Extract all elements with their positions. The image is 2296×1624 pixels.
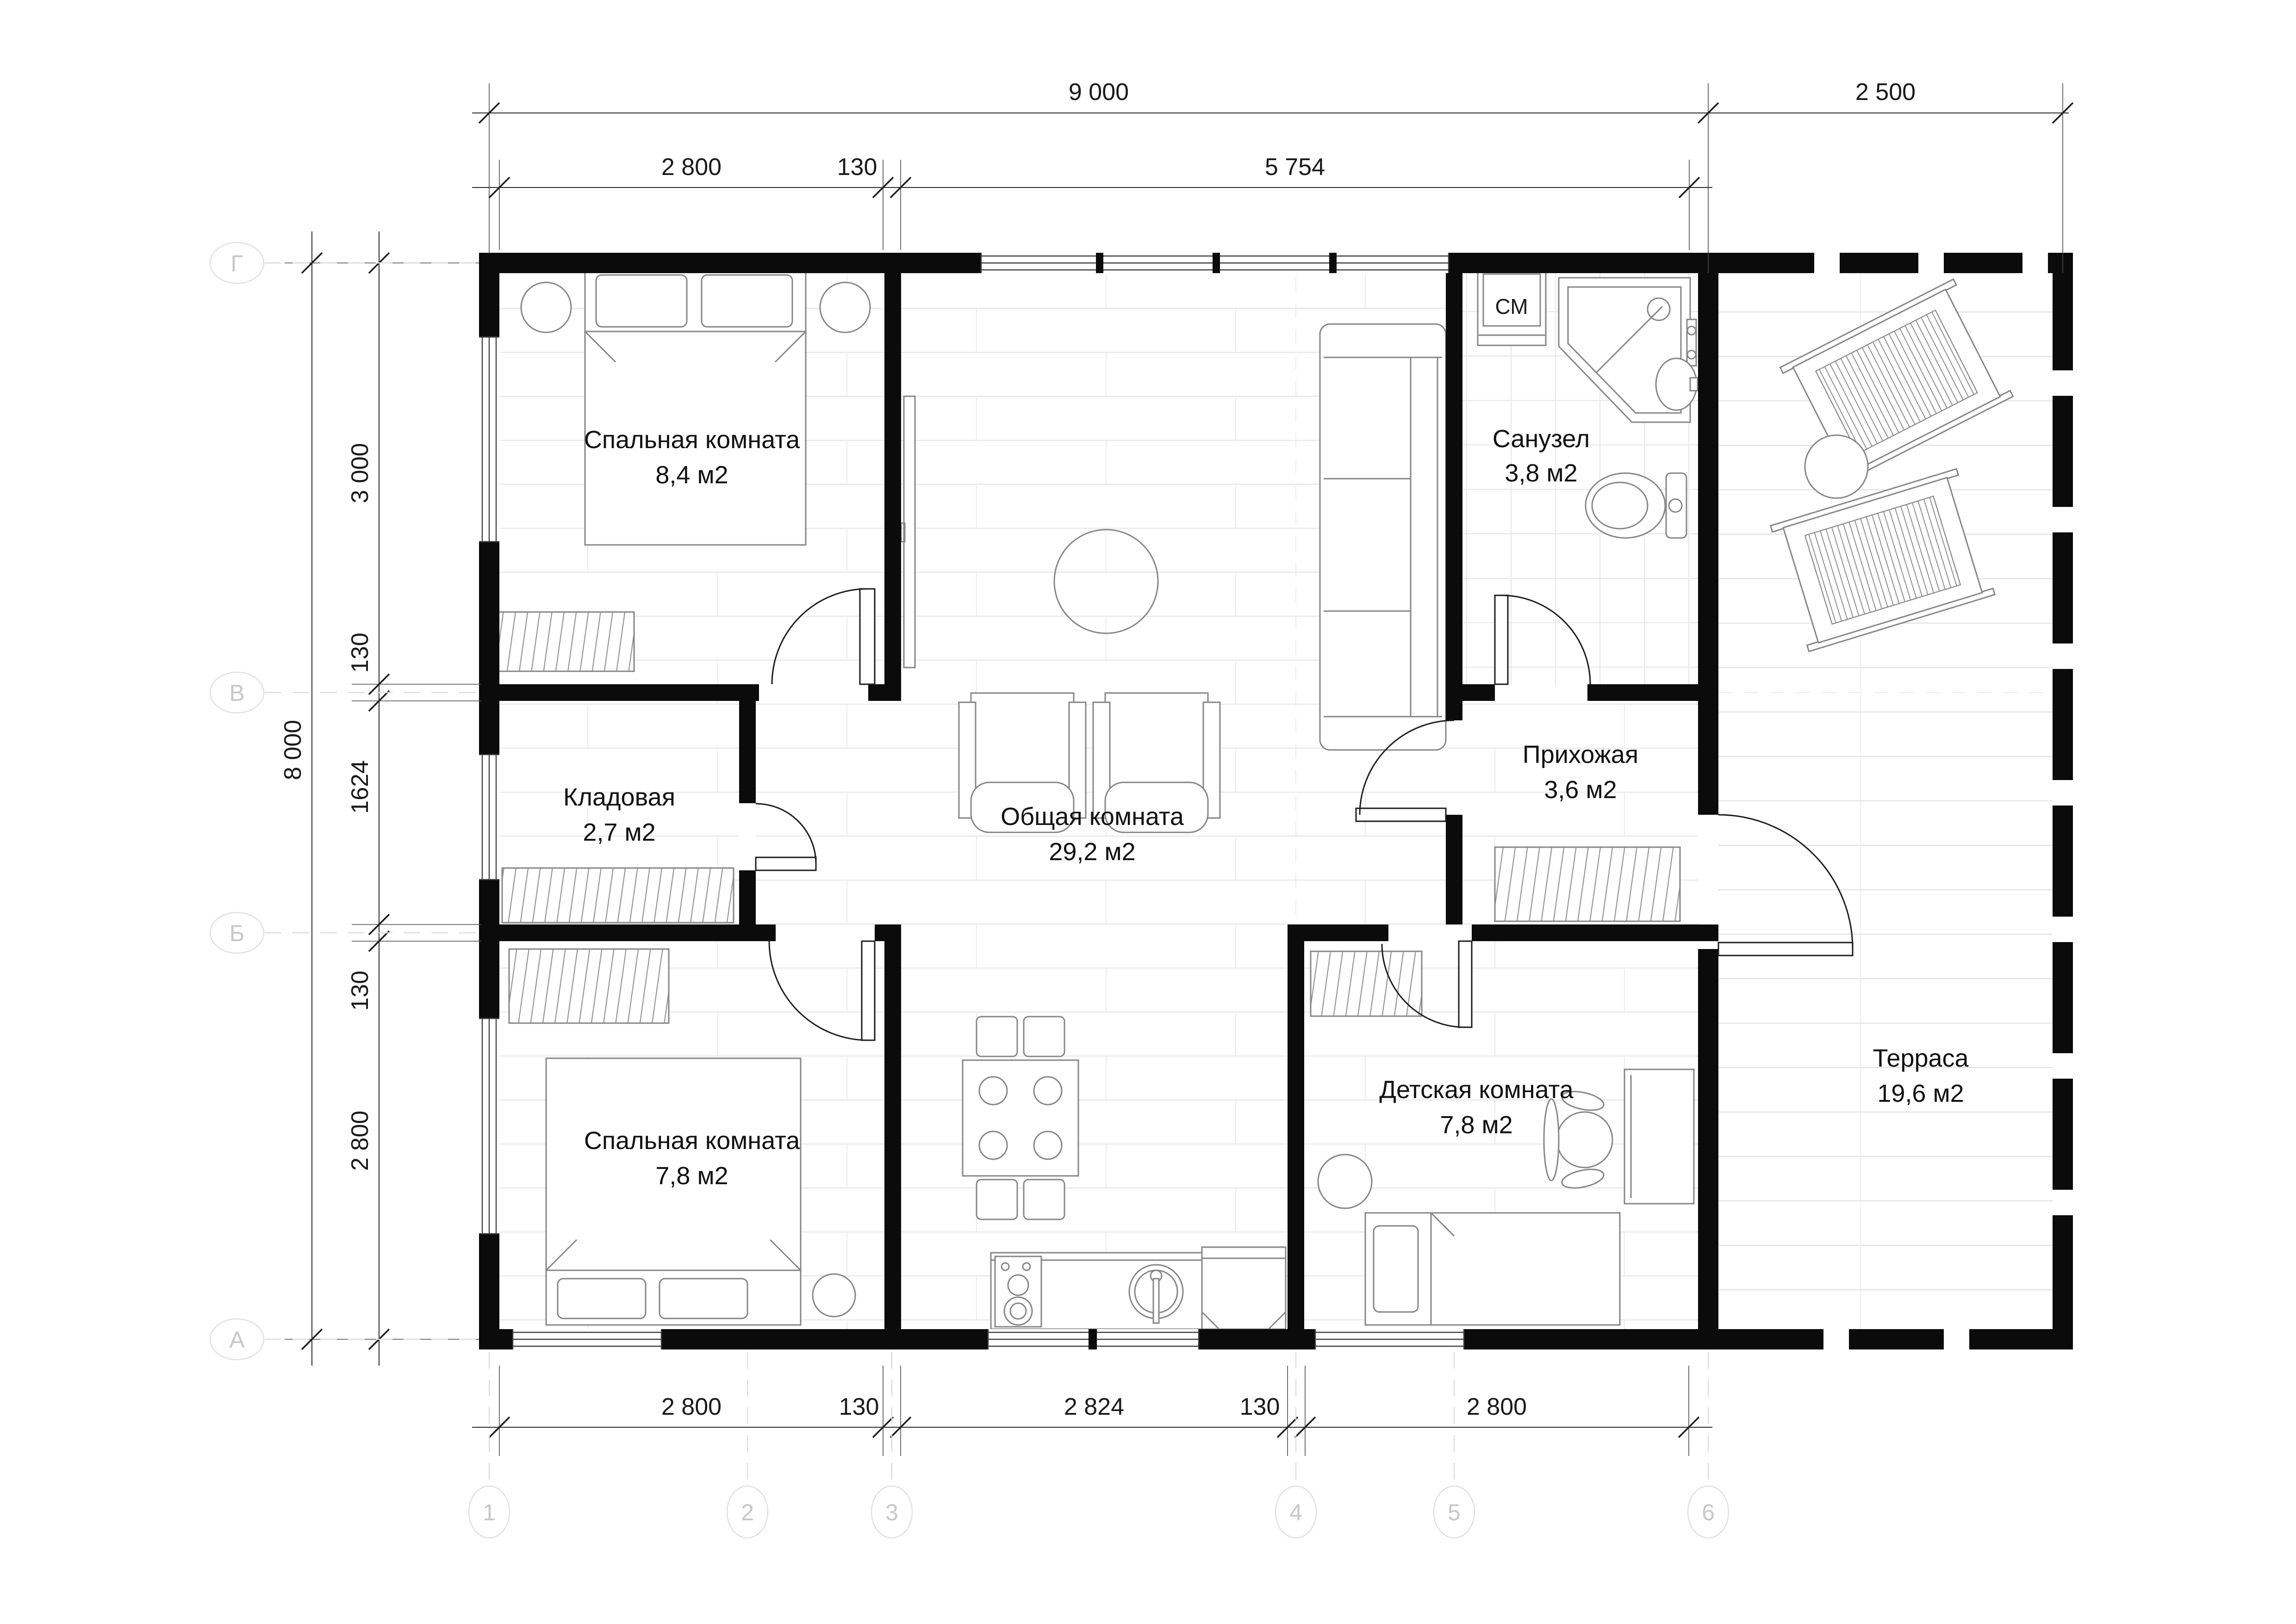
window-icon (1315, 1329, 1464, 1349)
svg-text:5: 5 (1448, 1499, 1461, 1525)
floor-plan-canvas: СМ (0, 0, 2296, 1624)
svg-text:Общая комната: Общая комната (1001, 803, 1184, 831)
dim-label: 3 000 (347, 443, 373, 503)
svg-text:3,8 м2: 3,8 м2 (1505, 459, 1577, 487)
svg-text:2,7 м2: 2,7 м2 (583, 818, 655, 846)
nightstand-icon (521, 282, 571, 332)
desk-icon (1624, 1069, 1694, 1204)
svg-text:29,2 м2: 29,2 м2 (1049, 838, 1135, 866)
svg-text:3: 3 (885, 1499, 898, 1525)
fridge-icon (1202, 1247, 1286, 1329)
dim-label: 130 (839, 1393, 879, 1420)
axis-bubble-col-4: 4 (1276, 1486, 1316, 1538)
svg-text:8,4 м2: 8,4 м2 (655, 461, 728, 489)
axis-bubble-col-1: 1 (469, 1486, 510, 1538)
svg-text:1: 1 (483, 1499, 496, 1525)
svg-text:3,6 м2: 3,6 м2 (1544, 776, 1617, 804)
washbasin-icon (1656, 358, 1698, 410)
window-icon (513, 1329, 661, 1349)
svg-text:Спальная комната: Спальная комната (584, 1127, 800, 1155)
dim-label: 130 (347, 971, 373, 1011)
svg-text:Прихожая: Прихожая (1523, 741, 1638, 768)
window-icon (479, 755, 499, 880)
dim-label: 8 000 (280, 720, 306, 780)
toilet-icon (1586, 473, 1686, 538)
dim-label: 2 824 (1064, 1393, 1124, 1420)
washing-machine-icon: СМ (1478, 269, 1546, 345)
svg-text:7,8 м2: 7,8 м2 (1440, 1111, 1512, 1139)
single-bed-icon (1365, 1213, 1620, 1325)
dim-label: 2 800 (1467, 1393, 1527, 1420)
window-icon (981, 253, 1449, 273)
dim-label: 1624 (347, 760, 373, 814)
svg-text:Терраса: Терраса (1873, 1044, 1969, 1072)
svg-text:Б: Б (230, 920, 245, 946)
stool-icon (813, 1274, 855, 1317)
wardrobe-icon (494, 612, 634, 671)
hallway-cabinet-icon (1495, 847, 1680, 921)
nightstand-icon (820, 282, 870, 332)
dim-label: 130 (1240, 1393, 1280, 1420)
svg-text:7,8 м2: 7,8 м2 (655, 1162, 728, 1190)
tv-icon (901, 396, 915, 668)
svg-text:19,6 м2: 19,6 м2 (1877, 1080, 1964, 1107)
stove-icon (995, 1256, 1041, 1327)
dim-label: 2 500 (1855, 79, 1916, 106)
storage-shelf-icon (502, 868, 734, 923)
svg-text:Детская комната: Детская комната (1379, 1076, 1574, 1104)
axis-bubble-col-2: 2 (727, 1486, 768, 1538)
terrace-table-icon (1805, 435, 1868, 498)
svg-text:2: 2 (741, 1499, 754, 1525)
svg-text:Санузел: Санузел (1493, 425, 1590, 453)
axis-bubble-row-g: Г (210, 243, 264, 283)
axis-bubble-col-6: 6 (1688, 1486, 1729, 1538)
dim-label: 130 (837, 154, 877, 181)
svg-text:6: 6 (1702, 1499, 1715, 1525)
svg-text:Спальная комната: Спальная комната (584, 426, 800, 454)
window-icon (479, 1018, 499, 1234)
ball-icon (1318, 1155, 1372, 1208)
axis-bubble-col-3: 3 (871, 1486, 912, 1538)
double-bed-icon (585, 268, 806, 545)
svg-text:Кладовая: Кладовая (563, 783, 675, 811)
office-chair-icon (1544, 1088, 1612, 1191)
dim-label: 2 800 (347, 1111, 373, 1171)
svg-text:4: 4 (1289, 1499, 1302, 1525)
window-icon (479, 337, 499, 542)
svg-text:Г: Г (230, 250, 243, 276)
axis-bubble-row-a: А (210, 1319, 264, 1360)
axis-bubble-row-b: Б (210, 912, 264, 953)
wardrobe-icon (509, 949, 669, 1023)
dim-label: 5 754 (1265, 154, 1325, 181)
svg-text:В: В (229, 680, 244, 706)
washing-machine-label: СМ (1495, 294, 1528, 319)
dim-label: 9 000 (1069, 79, 1129, 106)
wardrobe-icon (1311, 951, 1422, 1016)
dim-label: 130 (347, 633, 373, 673)
window-icon (988, 1329, 1199, 1349)
floor-corridor (756, 701, 901, 924)
axis-bubble-col-5: 5 (1434, 1486, 1475, 1538)
dim-label: 2 800 (661, 154, 722, 181)
double-bed-icon (546, 1058, 801, 1325)
sofa-icon (1320, 324, 1446, 750)
axis-bubble-row-v: В (210, 672, 264, 713)
dim-label: 2 800 (661, 1393, 722, 1420)
svg-text:А: А (229, 1327, 245, 1353)
